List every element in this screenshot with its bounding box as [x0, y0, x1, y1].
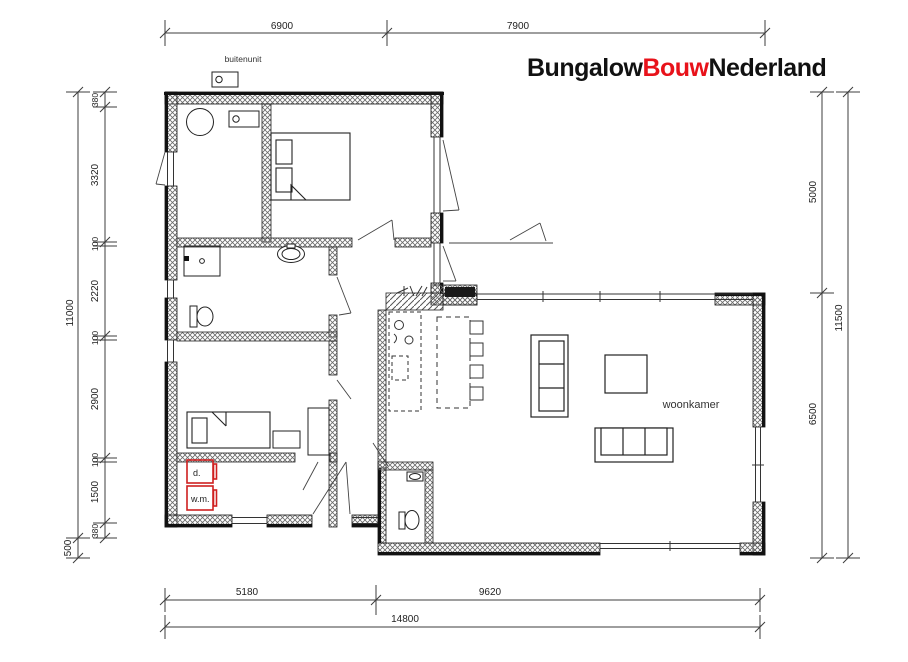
- label-woonkamer: woonkamer: [662, 399, 720, 411]
- double-bed: [271, 133, 350, 200]
- radiator: [184, 256, 189, 261]
- dim-left-overall: 11000: [65, 299, 76, 327]
- toilet: [190, 306, 213, 327]
- closet: [308, 408, 329, 455]
- dim-top-left: 6900: [271, 21, 294, 32]
- dim-right-top: 5000: [808, 180, 819, 203]
- dim-right-bottom: 6500: [808, 402, 819, 425]
- label-dryer: d.: [193, 468, 201, 478]
- boiler: [187, 109, 214, 136]
- dim-left-seg-2: 100: [90, 237, 100, 251]
- windows: [168, 137, 765, 551]
- kitchen-counter: [389, 312, 421, 411]
- dim-top-right: 7900: [507, 21, 530, 32]
- exterior-walls: [165, 92, 765, 555]
- kitchen-corner-block: [445, 287, 475, 297]
- dim-bottom-left: 5180: [236, 587, 259, 598]
- label-washing-machine: w.m.: [190, 494, 210, 504]
- wc-fixtures: [399, 472, 423, 530]
- sofa-vertical: [531, 335, 568, 417]
- dim-left-seg-6: 100: [90, 453, 100, 467]
- dim-left-seg-3: 2220: [90, 279, 101, 302]
- single-bed: [187, 412, 270, 448]
- outdoor-unit: [212, 72, 238, 87]
- shower: [184, 246, 220, 276]
- dimension-labels: 6900 7900 5180 9620 14800 11000 380 3320…: [63, 21, 845, 625]
- floorplan-drawing: 6900 7900 5180 9620 14800 11000 380 3320…: [0, 0, 908, 662]
- kitchen-sink: [394, 321, 413, 345]
- dim-left-seg-5: 2900: [90, 387, 101, 410]
- dim-left-offset: 500: [63, 539, 74, 556]
- dim-bottom-overall: 14800: [391, 614, 419, 625]
- dim-left-seg-4: 100: [90, 331, 100, 345]
- dim-left-seg-7: 1500: [90, 480, 101, 503]
- wall-outer-edges: [164, 92, 765, 555]
- dim-left-seg-1: 3320: [90, 163, 101, 186]
- kitchen-corner-wall: [386, 293, 443, 310]
- sofa-horizontal: [595, 428, 673, 462]
- label-buitenunit: buitenunit: [225, 54, 263, 64]
- dim-left-seg-0: 380: [90, 93, 100, 107]
- nightstand: [273, 431, 300, 448]
- coffee-table: [605, 355, 647, 393]
- dining-table: [437, 317, 483, 408]
- dryer-box: [187, 460, 217, 483]
- indoor-unit: [229, 111, 259, 127]
- dim-bottom-right: 9620: [479, 587, 502, 598]
- dim-left-seg-8: 380: [90, 524, 100, 538]
- dim-right-overall: 11500: [834, 304, 845, 332]
- floorplan-page: BungalowBouwNederland: [0, 0, 908, 662]
